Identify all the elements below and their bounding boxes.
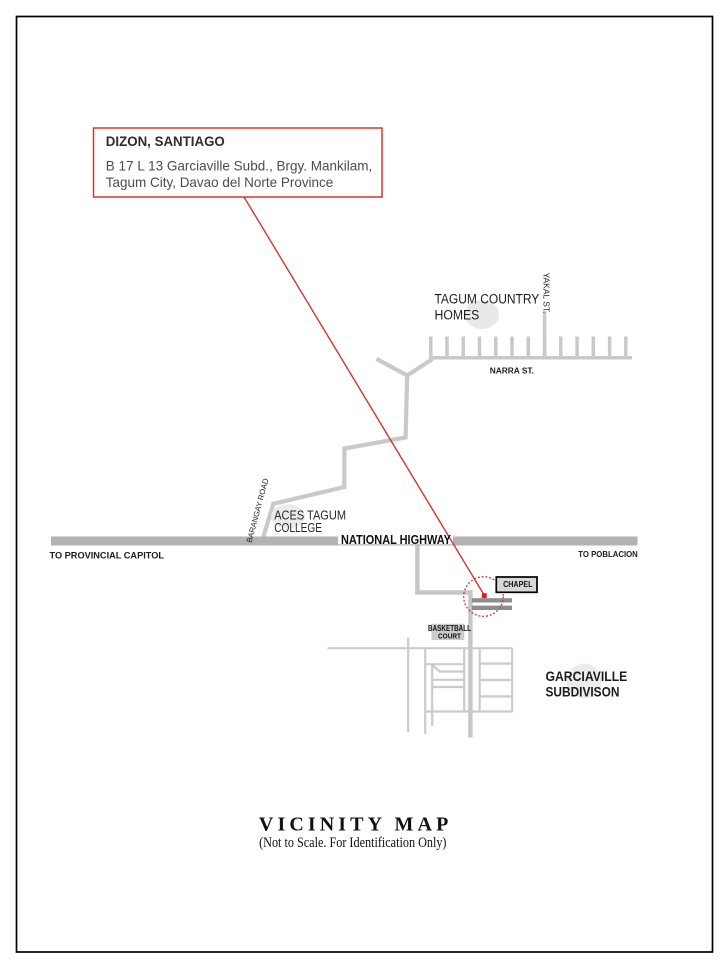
svg-text:HOMES: HOMES [435,307,480,322]
svg-text:DIZON, SANTIAGO: DIZON, SANTIAGO [106,133,225,149]
svg-text:B 17 L 13 Garciaville Subd., B: B 17 L 13 Garciaville Subd., Brgy. Manki… [106,157,373,173]
svg-text:TO PROVINCIAL CAPITOL: TO PROVINCIAL CAPITOL [50,550,165,561]
svg-text:(Not to Scale. For Identificat: (Not to Scale. For Identification Only) [259,835,447,851]
svg-text:BARANGAY ROAD: BARANGAY ROAD [245,477,271,543]
svg-text:NATIONAL HIGHWAY: NATIONAL HIGHWAY [341,532,451,547]
svg-text:GARCIAVILLE: GARCIAVILLE [546,669,628,684]
svg-text:SUBDIVISON: SUBDIVISON [546,685,620,700]
svg-text:VICINITY MAP: VICINITY MAP [259,814,453,836]
svg-text:COURT: COURT [438,632,461,641]
svg-text:CHAPEL: CHAPEL [503,580,532,589]
svg-text:YAKAL ST.: YAKAL ST. [542,273,551,314]
svg-text:NARRA ST.: NARRA ST. [490,366,534,376]
svg-text:COLLEGE: COLLEGE [274,521,322,535]
svg-text:TAGUM COUNTRY: TAGUM COUNTRY [435,291,540,306]
svg-text:Tagum City, Davao del Norte Pr: Tagum City, Davao del Norte Province [106,174,334,190]
svg-text:TO POBLACION: TO POBLACION [578,549,638,559]
